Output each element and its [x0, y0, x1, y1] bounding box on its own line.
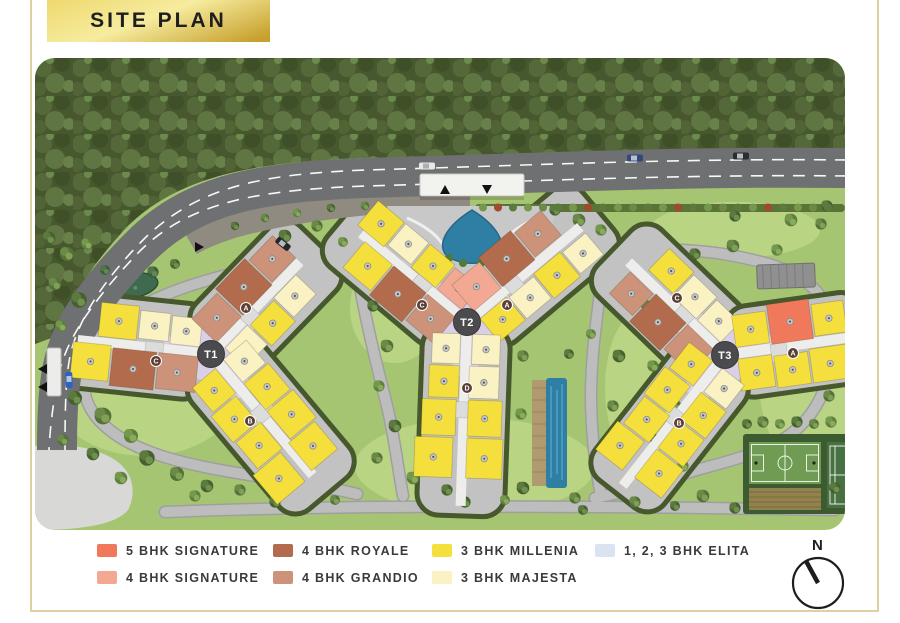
svg-text:B: B	[247, 419, 252, 426]
legend-swatch-4bhk-royale	[273, 544, 293, 557]
page-title-text: SITE PLAN	[90, 9, 227, 33]
legend-label: 4 BHK GRANDIO	[302, 571, 419, 585]
legend-swatch-elita	[595, 544, 615, 557]
basketball-court	[749, 442, 821, 484]
lawn-deck	[749, 488, 821, 510]
legend-swatch-3bhk-millenia	[432, 544, 452, 557]
svg-text:A: A	[790, 351, 795, 358]
legend-item: 1, 2, 3 BHK ELITA	[595, 541, 775, 560]
t2-badge-label: T2	[460, 317, 474, 329]
site-plan-page: SITE PLAN	[0, 0, 900, 623]
legend-swatch-4bhk-signature	[97, 571, 117, 584]
svg-text:C: C	[674, 296, 679, 303]
svg-text:C: C	[153, 359, 158, 366]
legend-item: 3 BHK MAJESTA	[432, 568, 595, 587]
legend-item: 5 BHK SIGNATURE	[97, 541, 273, 560]
legend: 5 BHK SIGNATURE 4 BHK SIGNATURE 4 BHK RO…	[97, 541, 775, 595]
lap-pool	[532, 378, 567, 488]
parking-shed	[757, 263, 816, 289]
legend-item: 4 BHK ROYALE	[273, 541, 432, 560]
frame-line-left	[30, 0, 32, 611]
compass-needle	[806, 561, 818, 583]
svg-text:C: C	[419, 303, 424, 310]
legend-column-2: 4 BHK ROYALE 4 BHK GRANDIO	[273, 541, 432, 595]
legend-item: 4 BHK GRANDIO	[273, 568, 432, 587]
gatehouse	[47, 348, 61, 396]
svg-text:A: A	[504, 303, 509, 310]
svg-text:A: A	[243, 306, 248, 313]
entrance-gate-canopy	[420, 174, 524, 196]
legend-swatch-5bhk-signature	[97, 544, 117, 557]
tennis-court	[827, 442, 845, 508]
site-plan-rendering: T1 C A B	[35, 58, 845, 530]
compass: N	[781, 536, 857, 614]
legend-swatch-4bhk-grandio	[273, 571, 293, 584]
legend-column-3: 3 BHK MILLENIA 3 BHK MAJESTA	[432, 541, 595, 595]
t1-badge-label: T1	[204, 349, 218, 361]
t3-badge-label: T3	[718, 350, 732, 362]
legend-label: 1, 2, 3 BHK ELITA	[624, 544, 750, 558]
compass-north-label: N	[812, 537, 823, 554]
page-title: SITE PLAN	[47, 0, 270, 42]
frame-line-bottom	[30, 610, 879, 612]
legend-item: 3 BHK MILLENIA	[432, 541, 595, 560]
legend-column-1: 5 BHK SIGNATURE 4 BHK SIGNATURE	[97, 541, 273, 595]
legend-item: 4 BHK SIGNATURE	[97, 568, 273, 587]
legend-label: 3 BHK MAJESTA	[461, 571, 578, 585]
legend-label: 4 BHK SIGNATURE	[126, 571, 259, 585]
legend-label: 5 BHK SIGNATURE	[126, 544, 259, 558]
legend-swatch-3bhk-majesta	[432, 571, 452, 584]
legend-label: 3 BHK MILLENIA	[461, 544, 579, 558]
legend-column-4: 1, 2, 3 BHK ELITA	[595, 541, 775, 595]
sports-courts	[743, 434, 845, 514]
svg-text:B: B	[676, 421, 681, 428]
legend-label: 4 BHK ROYALE	[302, 544, 410, 558]
frame-line-right	[877, 0, 879, 611]
svg-text:D: D	[464, 386, 469, 393]
